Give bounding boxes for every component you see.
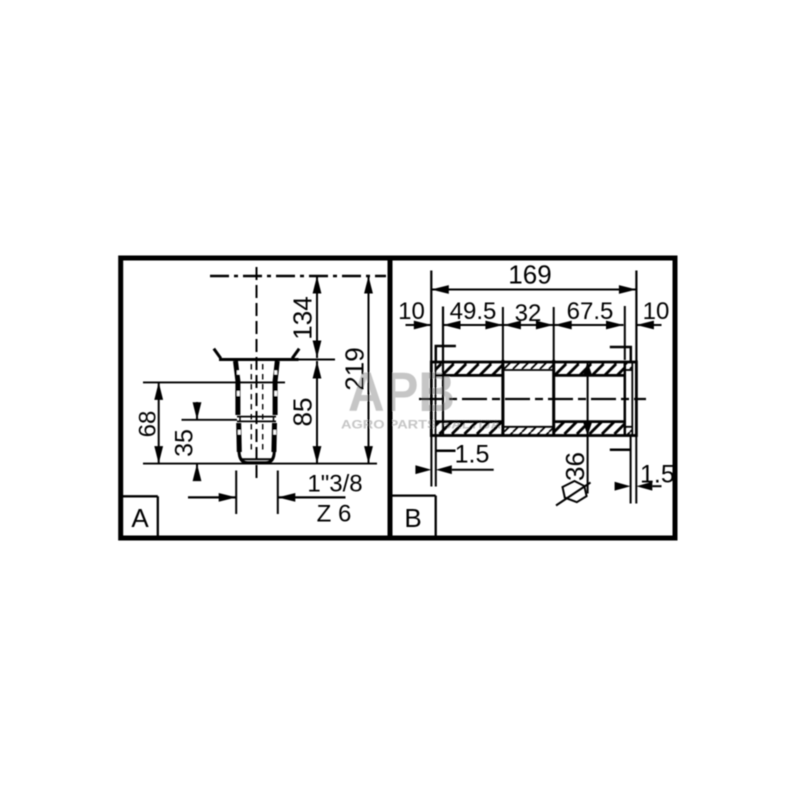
svg-text:36: 36 [560,452,590,481]
svg-text:32: 32 [515,300,542,327]
svg-text:A: A [131,503,149,533]
svg-text:1.5: 1.5 [640,461,675,489]
svg-text:49.5: 49.5 [450,298,497,325]
svg-text:35: 35 [171,429,199,457]
svg-text:68: 68 [135,411,162,438]
svg-text:Z 6: Z 6 [317,501,352,528]
svg-text:10: 10 [643,298,670,325]
svg-text:85: 85 [288,398,318,427]
svg-text:169: 169 [508,260,551,290]
svg-text:B: B [404,503,421,533]
svg-text:1"3/8: 1"3/8 [307,471,362,498]
svg-text:219: 219 [340,347,370,390]
svg-text:1.5: 1.5 [455,441,490,469]
svg-text:134: 134 [288,296,318,339]
svg-text:10: 10 [398,298,425,325]
svg-text:67.5: 67.5 [567,298,614,325]
